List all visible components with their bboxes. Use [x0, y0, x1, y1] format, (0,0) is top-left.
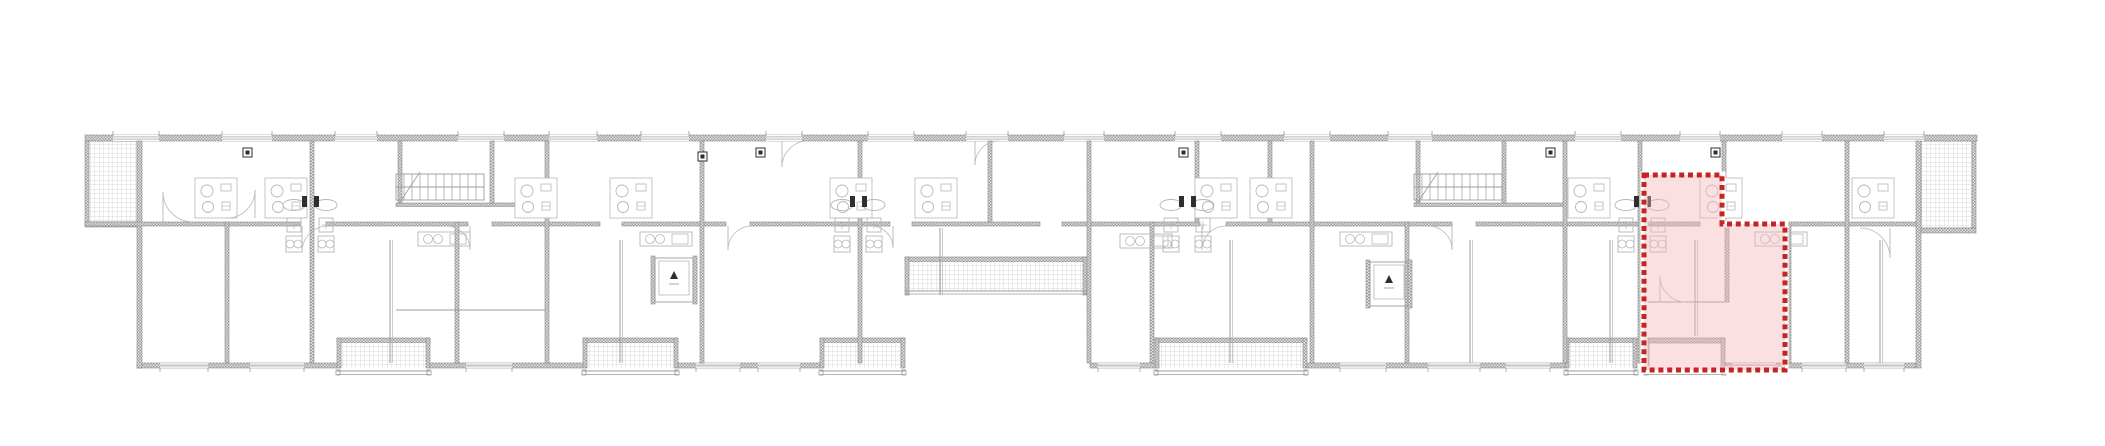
- balconies-layer: [336, 338, 1726, 375]
- building-floor-plan: [0, 0, 2105, 446]
- kitchens-layer: [418, 232, 1807, 248]
- floor-plan-canvas: [0, 0, 2105, 446]
- highlight-layer: [1644, 175, 1785, 370]
- selected-unit-highlight[interactable]: [1644, 175, 1785, 370]
- dark-units-layer: [243, 148, 1720, 161]
- loggia-layer: [905, 257, 1087, 295]
